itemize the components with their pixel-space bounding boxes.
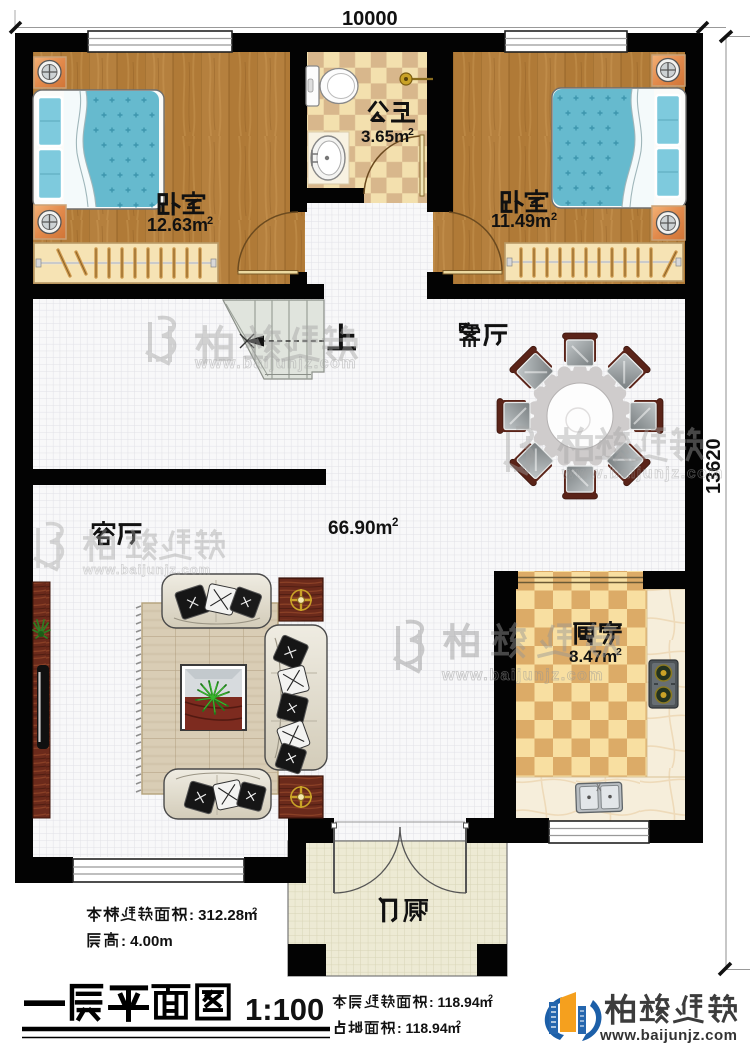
svg-text:www.baijunjz.com: www.baijunjz.com — [82, 562, 211, 577]
svg-text:2: 2 — [252, 906, 257, 917]
svg-text:11.49m: 11.49m — [491, 211, 551, 231]
svg-text:www.baijunjz.com: www.baijunjz.com — [441, 667, 604, 684]
svg-text:www.baijunjz.com: www.baijunjz.com — [561, 465, 724, 482]
svg-text:2: 2 — [408, 126, 414, 138]
svg-text:www.baijunjz.com: www.baijunjz.com — [599, 1027, 737, 1044]
svg-text:2: 2 — [392, 517, 398, 529]
svg-text:: 312.28m: : 312.28m — [189, 907, 257, 924]
svg-text:www.baijunjz.com: www.baijunjz.com — [194, 355, 357, 372]
svg-text:: 4.00m: : 4.00m — [121, 933, 173, 950]
svg-text:: 118.94m: : 118.94m — [429, 994, 492, 1010]
svg-text:2: 2 — [456, 1019, 461, 1029]
svg-text:12.63m: 12.63m — [147, 215, 208, 235]
svg-text:: 118.94m: : 118.94m — [397, 1020, 460, 1036]
svg-text:2: 2 — [551, 211, 557, 223]
svg-text:1:100: 1:100 — [245, 992, 324, 1027]
svg-text:10000: 10000 — [342, 8, 398, 30]
svg-text:66.90m: 66.90m — [328, 518, 392, 539]
svg-text:3.65m: 3.65m — [361, 127, 409, 146]
svg-text:2: 2 — [207, 215, 213, 227]
svg-text:2: 2 — [488, 993, 493, 1003]
